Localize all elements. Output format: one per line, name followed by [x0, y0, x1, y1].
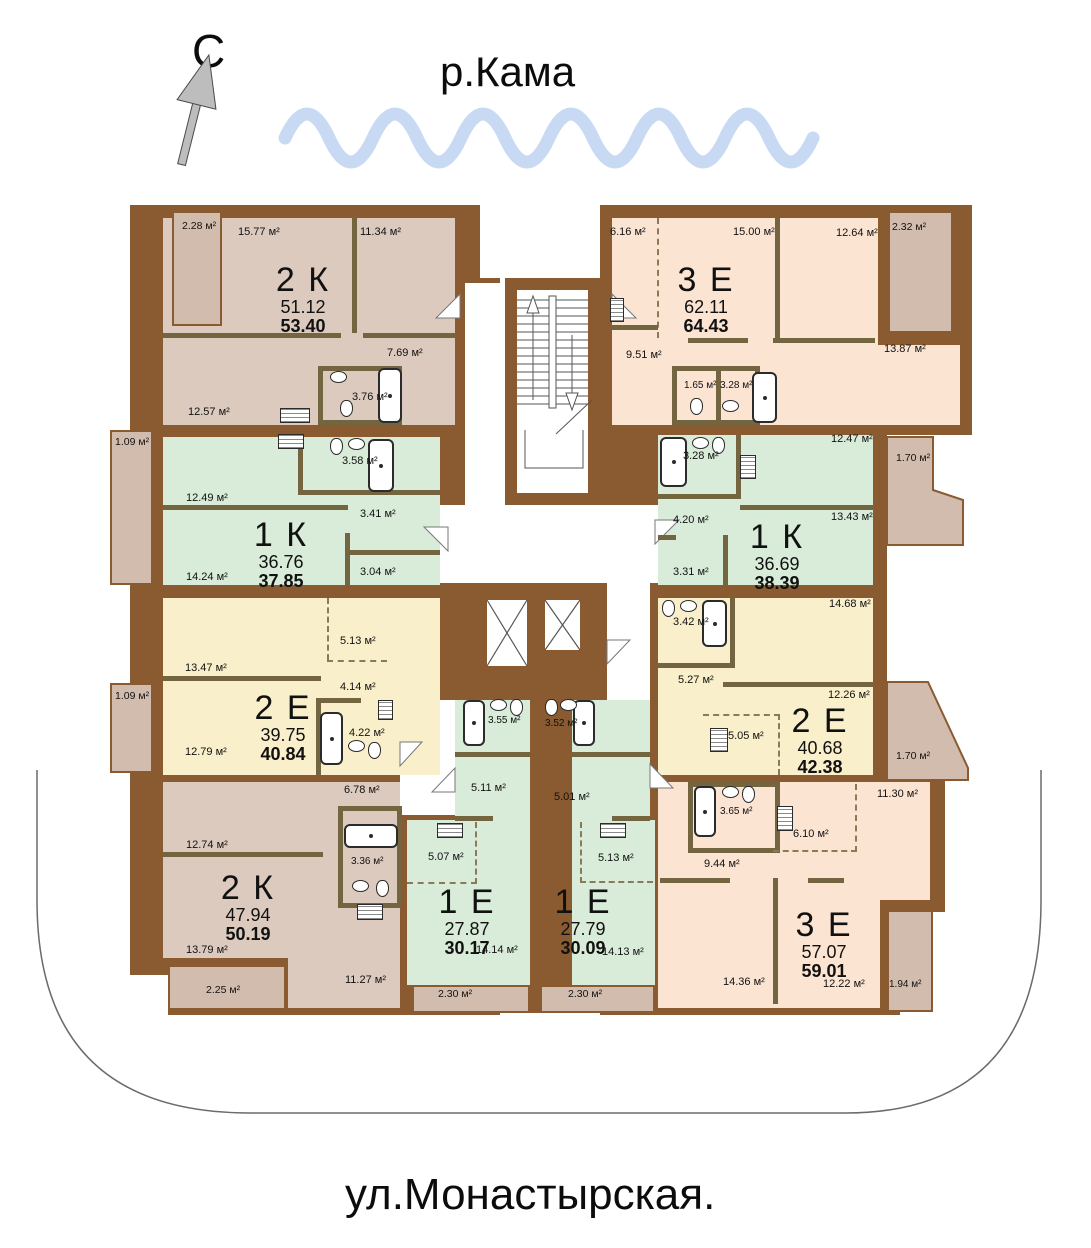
room-area-label: 5.13 м²: [340, 635, 376, 647]
room-area-label: 12.79 м²: [185, 746, 227, 758]
partition: [658, 663, 735, 668]
bathtub-icon: [694, 786, 716, 837]
room-area-label: 11.34 м²: [360, 226, 401, 238]
balcony-area-label: 2.28 м²: [182, 220, 216, 232]
partition: [163, 676, 321, 681]
room-area-label: 6.16 м²: [610, 226, 646, 238]
room-area-label: 5.05 м²: [728, 730, 764, 742]
room-area-label: 4.14 м²: [340, 681, 376, 693]
sink-icon: [692, 437, 709, 449]
partition: [350, 550, 440, 555]
toilet-icon: [376, 880, 389, 897]
room-area-label: 3.76 м²: [352, 391, 388, 403]
room-area-label: 13.87 м²: [884, 343, 926, 355]
room-area-label: 5.11 м²: [471, 782, 506, 794]
room-area-label: 14.13 м²: [602, 946, 644, 958]
partition: [688, 338, 748, 343]
sink-icon: [680, 600, 697, 612]
room-area-label: 12.64 м²: [836, 227, 878, 239]
cutout-bottom-left: [130, 975, 168, 1015]
apartment-3e-top-hall[interactable]: [612, 345, 960, 425]
lobby-right-strip: [607, 583, 650, 700]
balcony-area-label: 1.09 м²: [115, 690, 149, 702]
floor-plan: р.Кама С ул.Монастырская.: [0, 0, 1091, 1248]
toilet-icon: [690, 398, 703, 415]
room-area-label: 3.28 м²: [720, 380, 752, 391]
room-area-label: 13.43 м²: [831, 511, 873, 523]
toilet-icon: [368, 742, 381, 759]
partition: [740, 505, 873, 510]
room-area-label: 3.28 м²: [683, 450, 719, 462]
apartment-type: 3 Е: [641, 262, 771, 298]
stove-icon: [280, 408, 310, 423]
room-area-label: 3.41 м²: [360, 508, 396, 520]
lobby-top-notch: [480, 205, 505, 278]
river-label: р.Кама: [440, 48, 575, 96]
room-area-label: 14.24 м²: [186, 571, 228, 583]
washer-icon: [710, 728, 728, 752]
living-area: 57.07: [759, 943, 889, 962]
elevator-shaft-1: [487, 600, 527, 666]
bathtub-icon: [660, 437, 687, 487]
north-letter: С: [192, 24, 225, 78]
washer-icon: [378, 700, 393, 720]
room-area-label: 15.77 м²: [238, 226, 280, 238]
zone-divider: [580, 822, 582, 883]
lobby-stair-strip: [465, 283, 505, 505]
partition: [363, 333, 455, 338]
stairwell-interior: [517, 290, 588, 493]
room-area-label: 5.13 м²: [598, 852, 634, 864]
room-area-label: 3.58 м²: [342, 455, 378, 467]
toilet-icon: [742, 786, 755, 803]
balcony-area-label: 2.25 м²: [206, 984, 240, 996]
sink-icon: [722, 400, 739, 412]
room-area-label: 12.22 м²: [823, 978, 865, 990]
room-area-label: 12.49 м²: [186, 492, 228, 504]
total-area: 50.19: [183, 925, 313, 944]
partition: [455, 816, 493, 821]
living-area: 47.94: [183, 906, 313, 925]
total-area: 38.39: [712, 574, 842, 593]
partition: [775, 218, 780, 340]
living-area: 27.79: [528, 920, 638, 939]
living-area: 62.11: [641, 298, 771, 317]
partition: [660, 878, 730, 883]
total-area: 53.40: [238, 317, 368, 336]
total-area: 40.84: [218, 745, 348, 764]
balcony-area-label: 2.32 м²: [892, 221, 926, 233]
apartment-type: 2 К: [183, 870, 313, 906]
partition: [612, 816, 650, 821]
apartment-label-2k-bottom: 2 К 47.94 50.19: [183, 870, 313, 944]
room-area-label: 12.74 м²: [186, 839, 228, 851]
balcony-area-label: 1.94 м²: [889, 979, 921, 990]
room-area-label: 12.47 м²: [831, 433, 873, 445]
partition: [773, 338, 875, 343]
partition: [163, 852, 323, 857]
apartment-label-2e-left: 2 Е 39.75 40.84: [218, 690, 348, 764]
zone-divider: [773, 850, 857, 852]
room-area-label: 7.69 м²: [387, 347, 423, 359]
zone-divider: [855, 784, 857, 852]
partition: [572, 752, 650, 757]
room-area-label: 12.26 м²: [828, 689, 870, 701]
balcony-3e-bottom: [887, 910, 933, 1012]
room-area-label: 15.00 м²: [733, 226, 775, 238]
sink-icon: [348, 438, 365, 450]
washer-icon: [777, 806, 793, 831]
balcony-1k-left: [110, 430, 153, 585]
stove-icon: [437, 823, 463, 838]
apartment-label-2k-top: 2 К 51.12 53.40: [238, 262, 368, 336]
balcony-area-label: 2.30 м²: [568, 988, 602, 1000]
room-area-label: 3.52 м²: [545, 718, 577, 729]
room-area-label: 9.44 м²: [704, 858, 740, 870]
apartment-type: 2 К: [238, 262, 368, 298]
sink-icon: [352, 880, 369, 892]
balcony-area-label: 1.70 м²: [896, 750, 930, 762]
room-area-label: 13.79 м²: [186, 944, 228, 956]
room-area-label: 6.10 м²: [793, 828, 829, 840]
total-area: 37.85: [216, 572, 346, 591]
bathtub-icon: [463, 700, 485, 746]
stove-icon: [278, 434, 304, 449]
apartment-label-2e-right: 2 Е 40.68 42.38: [755, 703, 885, 777]
toilet-icon: [545, 699, 558, 716]
apartment-type: 1 К: [712, 519, 842, 555]
apartment-label-3e-bottom: 3 Е 57.07 59.01: [759, 907, 889, 981]
living-area: 40.68: [755, 739, 885, 758]
room-area-label: 12.57 м²: [188, 406, 230, 418]
toilet-icon: [510, 699, 523, 716]
apartment-type: 1 Е: [528, 884, 638, 920]
balcony-2e-right: [887, 682, 968, 780]
elevator-shaft-2: [545, 600, 580, 650]
room-area-label: 3.31 м²: [673, 566, 709, 578]
apartment-type: 2 Е: [755, 703, 885, 739]
toilet-icon: [330, 438, 343, 455]
room-area-label: 11.30 м²: [877, 788, 918, 800]
room-area-label: 3.42 м²: [673, 616, 709, 628]
apartment-label-3e-top: 3 Е 62.11 64.43: [641, 262, 771, 336]
room-area-label: 3.65 м²: [720, 806, 752, 817]
sink-icon: [330, 371, 347, 383]
apartment-type: 1 К: [216, 517, 346, 553]
stove-icon: [600, 823, 626, 838]
room-area-label: 3.55 м²: [488, 715, 520, 726]
zone-divider: [327, 598, 329, 660]
bathtub-icon: [344, 824, 398, 848]
zone-divider: [475, 822, 477, 884]
room-area-label: 14.68 м²: [829, 598, 871, 610]
wave-icon: [285, 114, 813, 162]
street-label: ул.Монастырская.: [345, 1170, 715, 1220]
partition: [723, 682, 873, 687]
wall-elevator-block: [453, 583, 605, 700]
room-area-label: 1.65 м²: [684, 380, 716, 391]
toilet-icon: [662, 600, 675, 617]
living-area: 51.12: [238, 298, 368, 317]
apartment-type: 1 Е: [412, 884, 522, 920]
stove-icon: [357, 904, 383, 920]
room-area-label: 4.22 м²: [349, 727, 385, 739]
sink-icon: [348, 740, 365, 752]
stove-icon: [740, 455, 756, 479]
sink-icon: [560, 699, 577, 711]
room-area-label: 3.36 м²: [351, 856, 383, 867]
apartment-type: 2 Е: [218, 690, 348, 726]
total-area: 42.38: [755, 758, 885, 777]
partition: [163, 505, 348, 510]
living-area: 36.76: [216, 553, 346, 572]
partition: [298, 490, 440, 495]
apartment-label-1k-right: 1 К 36.69 38.39: [712, 519, 842, 593]
partition: [658, 535, 676, 540]
partition: [658, 494, 741, 499]
balcony-area-label: 1.70 м²: [896, 452, 930, 464]
partition: [808, 878, 844, 883]
sink-icon: [722, 786, 739, 798]
room-area-label: 5.07 м²: [428, 851, 464, 863]
partition: [730, 598, 735, 666]
balcony-area-label: 1.09 м²: [115, 436, 149, 448]
room-area-label: 14.36 м²: [723, 976, 765, 988]
bathtub-icon: [752, 372, 777, 423]
partition: [716, 366, 721, 425]
partition: [455, 752, 530, 757]
living-area: 36.69: [712, 555, 842, 574]
room-area-label: 4.20 м²: [673, 514, 709, 526]
room-area-label: 11.27 м²: [345, 974, 386, 986]
room-area-label: 9.51 м²: [626, 349, 662, 361]
living-area: 39.75: [218, 726, 348, 745]
zone-divider: [327, 660, 387, 662]
balcony-area-label: 2.30 м²: [438, 988, 472, 1000]
room-area-label: 5.27 м²: [678, 674, 714, 686]
apartment-type: 3 Е: [759, 907, 889, 943]
total-area: 64.43: [641, 317, 771, 336]
living-area: 27.87: [412, 920, 522, 939]
lobby-mid: [440, 505, 660, 583]
washer-icon: [610, 298, 624, 322]
sink-icon: [490, 699, 507, 711]
room-area-label: 3.04 м²: [360, 566, 396, 578]
apartment-label-1k-left: 1 К 36.76 37.85: [216, 517, 346, 591]
room-area-label: 13.47 м²: [185, 662, 227, 674]
room-area-label: 5.01 м²: [554, 791, 590, 803]
room-area-label: 6.78 м²: [344, 784, 380, 796]
room-area-label: 14.14 м²: [476, 944, 518, 956]
